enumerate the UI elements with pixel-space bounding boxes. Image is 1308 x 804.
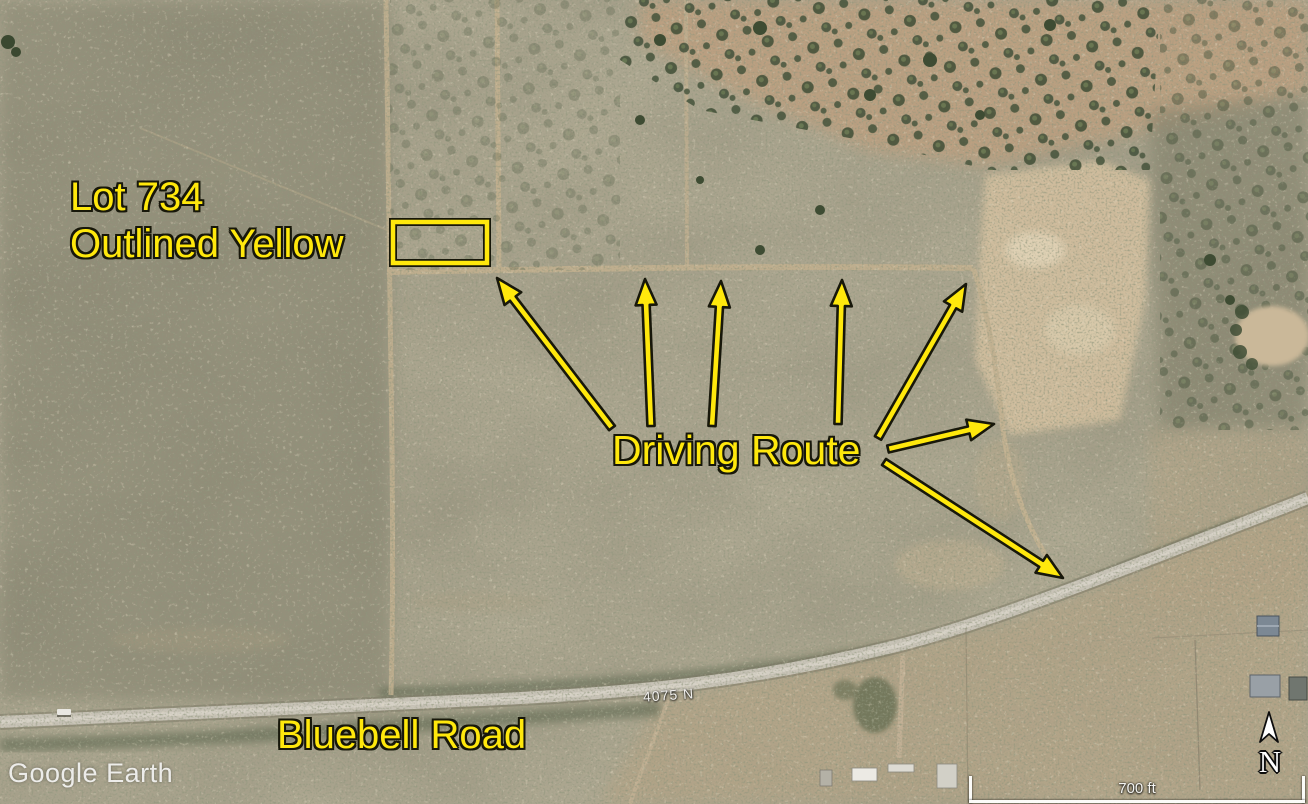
lot-annotation-line2: Outlined Yellow [70, 221, 344, 268]
scale-bar: 700 ft [969, 776, 1305, 803]
bluebell-road-label: Bluebell Road [277, 712, 526, 759]
scale-bar-baseline [969, 800, 1305, 803]
compass: N [1252, 708, 1288, 778]
satellite-imagery [0, 0, 1308, 804]
google-earth-viewport[interactable]: Lot 734 Outlined Yellow Driving Route Bl… [0, 0, 1308, 804]
lot-annotation-line1: Lot 734 [70, 174, 344, 221]
google-earth-watermark: Google Earth [8, 758, 173, 789]
lot-annotation: Lot 734 Outlined Yellow [70, 174, 344, 268]
driving-route-label: Driving Route [612, 427, 860, 475]
scale-bar-label: 700 ft [969, 780, 1305, 797]
compass-north-label: N [1252, 744, 1288, 780]
